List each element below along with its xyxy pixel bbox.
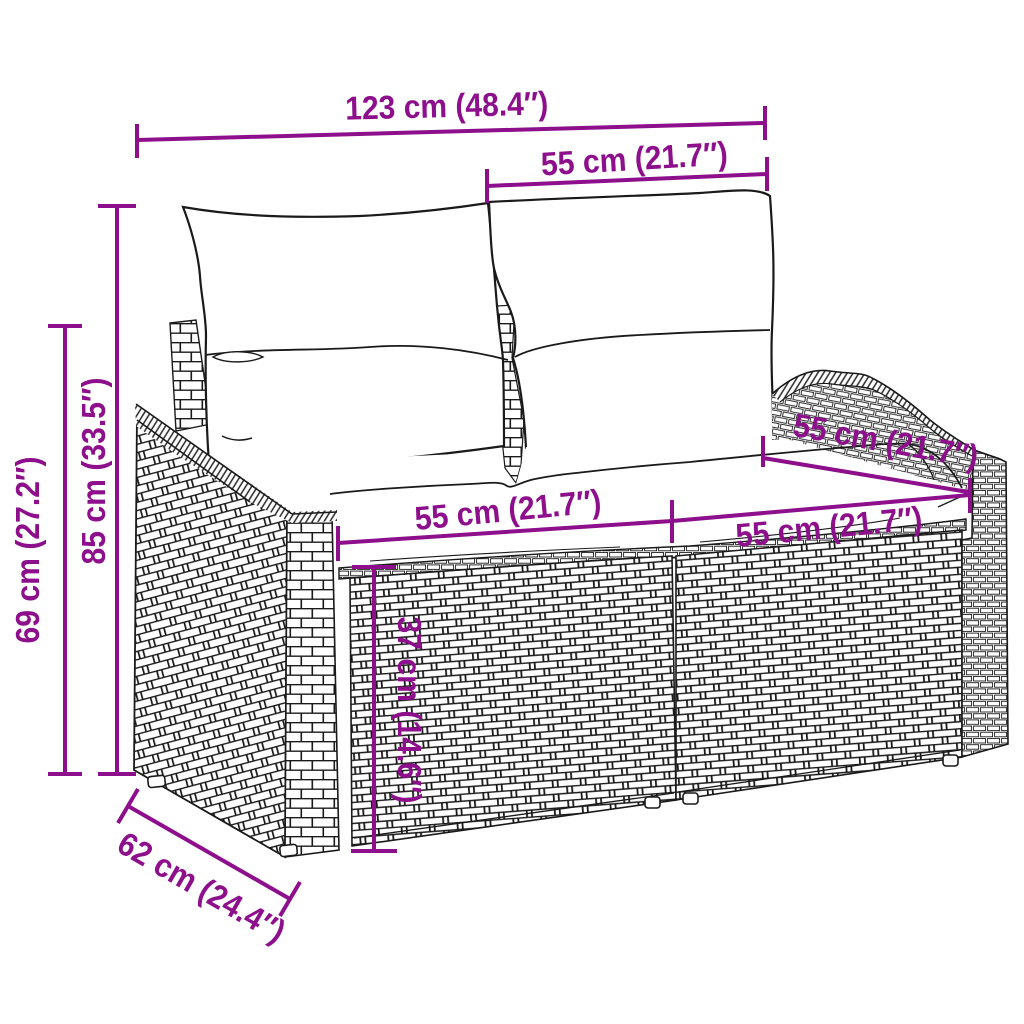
svg-text:85 cm (33.5″): 85 cm (33.5″) xyxy=(75,378,112,565)
svg-text:123 cm (48.4″): 123 cm (48.4″) xyxy=(345,84,549,126)
svg-text:69 cm (27.2″): 69 cm (27.2″) xyxy=(9,457,46,644)
svg-text:37 cm (14.6″): 37 cm (14.6″) xyxy=(391,617,428,804)
